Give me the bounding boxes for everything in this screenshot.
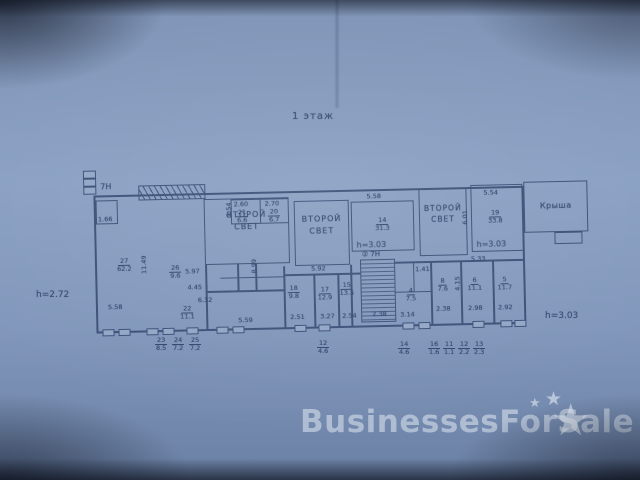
dim-5-33: 5.33 (471, 256, 486, 263)
dim-2-98: 2.98 (468, 305, 483, 312)
dim-2-38-stair: 2.38 (372, 311, 387, 318)
star-icon: ★ (551, 399, 590, 443)
room-label-22: 2211.1 (180, 305, 195, 321)
dim-2-38: 2.38 (436, 306, 451, 313)
height-label-mid: h=3.03 (357, 240, 387, 250)
window-mark (102, 329, 114, 336)
height-label-bottom-right: h=3.03 (545, 311, 578, 321)
survey-mark: 161.6 (428, 341, 440, 357)
room-label-19: 1933.8 (488, 209, 503, 225)
window-mark (162, 328, 174, 335)
floor-plan: 7Н 1.66 2762.2 11.49 5.58 ВТОРОЙ СВЕТ 26… (83, 159, 597, 366)
dim-8-99: 8.99 (251, 259, 258, 274)
window-mark (216, 327, 228, 334)
survey-mark: 111.1 (443, 341, 455, 357)
dim-2-60: 2.60 (234, 201, 249, 208)
window-mark (514, 320, 526, 327)
dim-6-32: 6.32 (198, 297, 213, 304)
survey-mark: 122.2 (458, 341, 470, 357)
survey-mark: 247.2 (172, 337, 184, 353)
window-mark (418, 322, 430, 329)
dim-5-59: 5.59 (238, 317, 253, 324)
room-label-17: 1712.9 (318, 286, 333, 302)
window-mark (118, 329, 130, 336)
window-mark (318, 324, 330, 331)
roof-label: Крыша (524, 199, 588, 212)
room-label-4: 47.5 (406, 287, 417, 303)
room-label-5: 511.7 (497, 276, 512, 292)
room-label-26: 269.6 (169, 265, 182, 281)
dim-6-01: 6.01 (462, 210, 469, 225)
dim-3-27: 3.27 (320, 313, 335, 320)
room-label-8: 87.6 (437, 278, 448, 294)
window-mark (186, 327, 198, 334)
room-label-15: 1513.5 (339, 282, 354, 298)
closet-area-label: 1.66 (98, 216, 113, 223)
unit-label-7n: 7Н (100, 183, 111, 191)
dim-5-97: 5.97 (185, 268, 200, 275)
annex-notch (554, 231, 582, 244)
exterior-stair-hatch (138, 184, 205, 201)
room-label-14: 1431.3 (375, 217, 390, 233)
room-label-21: 216.6 (236, 209, 249, 225)
dim-3-14: 3.14 (400, 311, 415, 318)
survey-mark: 132.3 (473, 341, 485, 357)
second-light-label-2: ВТОРОЙ СВЕТ (294, 213, 350, 238)
dim-2-54: 2.54 (342, 313, 357, 320)
room-label-18: 189.8 (288, 285, 301, 301)
dim-1-41: 1.41 (415, 266, 430, 273)
dim-5-58-left: 5.58 (108, 304, 123, 311)
survey-mark: 257.2 (189, 337, 201, 353)
dim-2-92: 2.92 (498, 304, 513, 311)
dim-2-51: 2.51 (290, 314, 305, 321)
dim-4-15: 4.15 (454, 276, 461, 291)
plan-title: 1 этаж (292, 111, 334, 122)
window-mark (83, 187, 96, 195)
dim-2-70: 2.70 (265, 200, 280, 207)
dim-5-58-mid: 5.58 (366, 193, 381, 200)
window-mark (402, 322, 414, 329)
dim-2-54-vert: 2.54 (226, 202, 233, 217)
height-label-right: h=3.03 (477, 239, 507, 249)
survey-mark: 124.6 (317, 340, 329, 356)
window-mark (500, 320, 512, 327)
dim-11-49: 11.49 (141, 255, 148, 274)
window-mark (232, 326, 244, 333)
survey-mark: 238.5 (155, 337, 167, 353)
window-mark (294, 325, 306, 332)
survey-mark: 144.6 (398, 341, 410, 357)
room-label-27: 2762.2 (117, 258, 132, 274)
blueprint-photo: 1 этаж (0, 0, 640, 480)
room-label-6: 611.1 (467, 277, 482, 293)
dim-5-54: 5.54 (483, 189, 498, 196)
dim-5-92: 5.92 (311, 265, 326, 272)
height-label-left: h=2.72 (36, 290, 69, 300)
star-icon: ★ (529, 397, 541, 410)
window-mark (146, 328, 158, 335)
window-mark (472, 321, 484, 328)
second-light-label-3: ВТОРОЙ СВЕТ (419, 202, 467, 226)
paper-crease (336, 0, 338, 108)
dim-4-45: 4.45 (187, 284, 202, 291)
unit-label-7n-mid: ② 7Н (362, 251, 380, 258)
room-label-20: 206.7 (268, 208, 281, 224)
